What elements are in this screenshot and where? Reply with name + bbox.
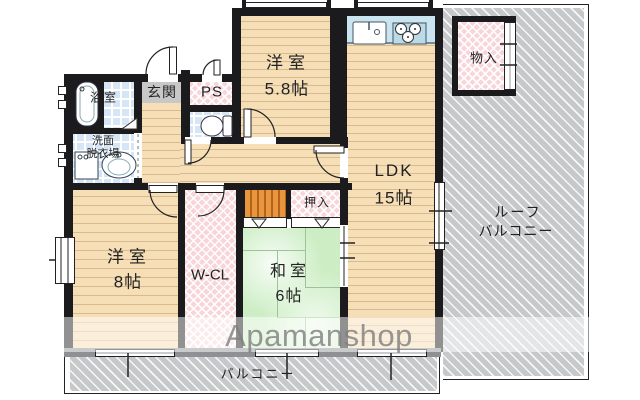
label-wcl: W-CL bbox=[191, 267, 229, 284]
west8-door-arc bbox=[150, 190, 177, 217]
toilet-bowl bbox=[201, 116, 223, 136]
ps-door-leaf bbox=[214, 60, 220, 75]
label-entrance: 玄関 bbox=[147, 82, 177, 102]
stove-burner-dot bbox=[407, 36, 409, 38]
wcl-door-arc bbox=[198, 190, 224, 216]
label-oshiire: 押入 bbox=[304, 194, 330, 211]
label-ldk: LDK bbox=[374, 161, 413, 181]
washitsu-sliding-ticks bbox=[340, 243, 355, 258]
ldk-door-leaf bbox=[314, 146, 344, 153]
label-pipe-space: PS bbox=[201, 84, 223, 101]
label-ldk-size: 15帖 bbox=[375, 184, 414, 209]
label-washitsu: 和室 bbox=[270, 257, 310, 281]
watermark-text: Apamanshop bbox=[225, 318, 413, 354]
window-ldk-ticks bbox=[429, 211, 452, 243]
label-roof-balcony-1: ルーフ bbox=[494, 202, 541, 222]
stove-burner-dot bbox=[400, 28, 402, 30]
oshiire-triangle bbox=[315, 219, 329, 228]
window-west8-lines bbox=[61, 238, 68, 283]
oshiire-triangle bbox=[252, 219, 266, 228]
west8-door-leaf bbox=[149, 186, 177, 193]
toilet-door-leaf bbox=[185, 140, 191, 164]
entrance-door-arc bbox=[146, 47, 173, 74]
ldk-door-arc bbox=[316, 150, 344, 178]
label-western-8: 洋室 bbox=[107, 243, 151, 268]
label-balcony: バルコニー bbox=[221, 364, 296, 383]
west58-door-leaf bbox=[244, 109, 251, 137]
label-western-8-size: 8帖 bbox=[114, 268, 142, 293]
stove-burner-dot bbox=[414, 28, 416, 30]
storage-door-ticks bbox=[500, 44, 517, 65]
bath-door-triangle bbox=[122, 118, 137, 129]
label-roof-balcony-2: バルコニー bbox=[479, 221, 554, 241]
entrance-door-leaf bbox=[170, 47, 177, 74]
label-western-58-size: 5.8帖 bbox=[265, 75, 310, 100]
label-washroom-2: 脱衣場 bbox=[87, 145, 120, 161]
label-washitsu-size: 6帖 bbox=[276, 282, 303, 306]
label-bath: 浴室 bbox=[90, 89, 118, 106]
floor-plan: 浴室 玄関 PS 洗面 脱衣場 洋室 5.8帖 LDK 15帖 物入 ルーフ バ… bbox=[0, 0, 640, 400]
wcl-door-leaf bbox=[196, 186, 224, 193]
label-western-58: 洋室 bbox=[266, 49, 310, 74]
label-storage: 物入 bbox=[470, 48, 498, 67]
toilet-tank bbox=[223, 116, 232, 136]
